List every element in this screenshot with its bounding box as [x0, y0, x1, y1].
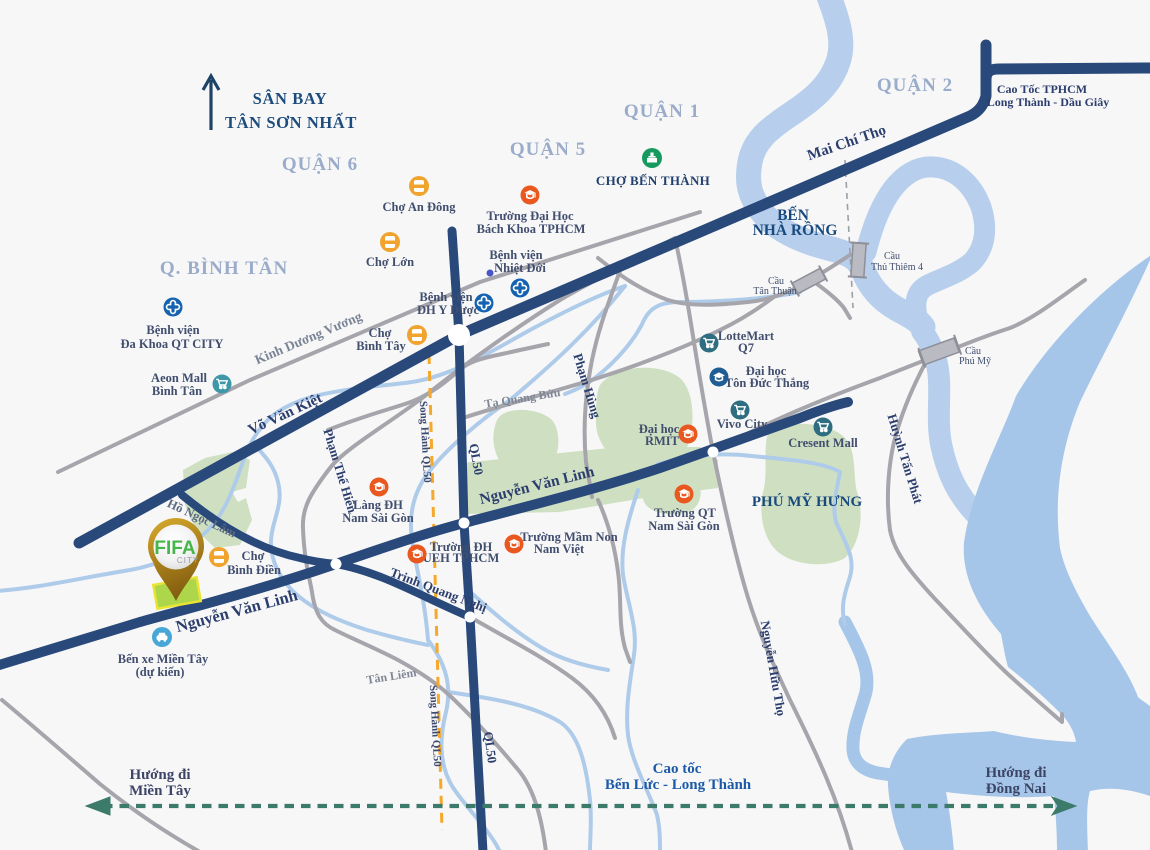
- svg-text:Chợ An Đông: Chợ An Đông: [383, 200, 457, 214]
- svg-text:Aeon Mall: Aeon Mall: [151, 371, 207, 385]
- svg-text:Bình Tây: Bình Tây: [356, 339, 406, 353]
- svg-text:Q7: Q7: [738, 341, 754, 355]
- svg-text:Hướng đi: Hướng đi: [985, 765, 1046, 781]
- svg-text:QUẬN 5: QUẬN 5: [510, 138, 586, 160]
- svg-text:QUẬN 6: QUẬN 6: [282, 153, 358, 175]
- svg-text:Nam Sài Gòn: Nam Sài Gòn: [648, 519, 720, 533]
- svg-text:SÂN BAY: SÂN BAY: [253, 89, 328, 108]
- svg-text:Trường Đại Học: Trường Đại Học: [486, 209, 574, 223]
- svg-text:Bình Tân: Bình Tân: [152, 384, 202, 398]
- svg-text:Phú Mỹ: Phú Mỹ: [959, 356, 991, 367]
- svg-text:Nam Việt: Nam Việt: [534, 542, 585, 556]
- svg-text:Trường QT: Trường QT: [654, 506, 716, 520]
- svg-text:Bệnh viện: Bệnh viện: [146, 323, 199, 337]
- svg-text:CITY: CITY: [177, 555, 200, 565]
- svg-text:PHÚ MỸ HƯNG: PHÚ MỸ HƯNG: [752, 492, 863, 510]
- svg-text:(dự kiến): (dự kiến): [136, 665, 185, 679]
- svg-text:Đồng Nai: Đồng Nai: [986, 781, 1046, 797]
- svg-text:NHÀ RỒNG: NHÀ RỒNG: [753, 221, 838, 239]
- svg-text:QUẬN 2: QUẬN 2: [877, 74, 953, 96]
- svg-text:Bách Khoa TPHCM: Bách Khoa TPHCM: [477, 222, 586, 236]
- svg-text:Chợ Lớn: Chợ Lớn: [366, 255, 414, 269]
- svg-text:Miền Tây: Miền Tây: [129, 783, 191, 799]
- svg-text:Chợ: Chợ: [242, 549, 265, 563]
- svg-text:Nam Sài Gòn: Nam Sài Gòn: [342, 511, 414, 525]
- svg-text:Tôn Đức Thắng: Tôn Đức Thắng: [725, 376, 810, 390]
- svg-text:Q. BÌNH TÂN: Q. BÌNH TÂN: [160, 257, 288, 279]
- svg-text:Tân Thuận: Tân Thuận: [753, 286, 796, 297]
- svg-text:Cầu: Cầu: [884, 251, 900, 262]
- svg-text:CHỢ BẾN THÀNH: CHỢ BẾN THÀNH: [596, 173, 710, 188]
- svg-text:TÂN SƠN NHẤT: TÂN SƠN NHẤT: [225, 113, 357, 132]
- svg-text:ĐH Y Dược: ĐH Y Dược: [417, 303, 480, 317]
- svg-text:Bến xe Miền Tây: Bến xe Miền Tây: [118, 652, 209, 666]
- svg-text:Cao tốc: Cao tốc: [653, 761, 702, 777]
- svg-text:Cresent Mall: Cresent Mall: [788, 436, 858, 450]
- svg-text:Nhiệt Đới: Nhiệt Đới: [494, 261, 546, 275]
- svg-text:QUẬN 1: QUẬN 1: [624, 100, 700, 122]
- svg-text:Bến Lức - Long Thành: Bến Lức - Long Thành: [605, 777, 752, 793]
- svg-text:Long Thành - Dầu Giây: Long Thành - Dầu Giây: [987, 95, 1110, 109]
- svg-text:RMIT: RMIT: [645, 434, 680, 448]
- svg-text:Chợ: Chợ: [369, 326, 392, 340]
- svg-text:Đa Khoa QT CITY: Đa Khoa QT CITY: [121, 337, 224, 351]
- svg-text:Thủ Thiêm 4: Thủ Thiêm 4: [871, 262, 923, 273]
- svg-text:UEH TPHCM: UEH TPHCM: [423, 551, 500, 565]
- svg-text:Bình Điền: Bình Điền: [227, 563, 281, 577]
- svg-text:Cao Tốc TPHCM: Cao Tốc TPHCM: [997, 82, 1087, 96]
- svg-text:Bệnh viện: Bệnh viện: [489, 248, 542, 262]
- svg-text:Hướng đi: Hướng đi: [129, 767, 190, 783]
- svg-text:Bệnh viện: Bệnh viện: [419, 290, 472, 304]
